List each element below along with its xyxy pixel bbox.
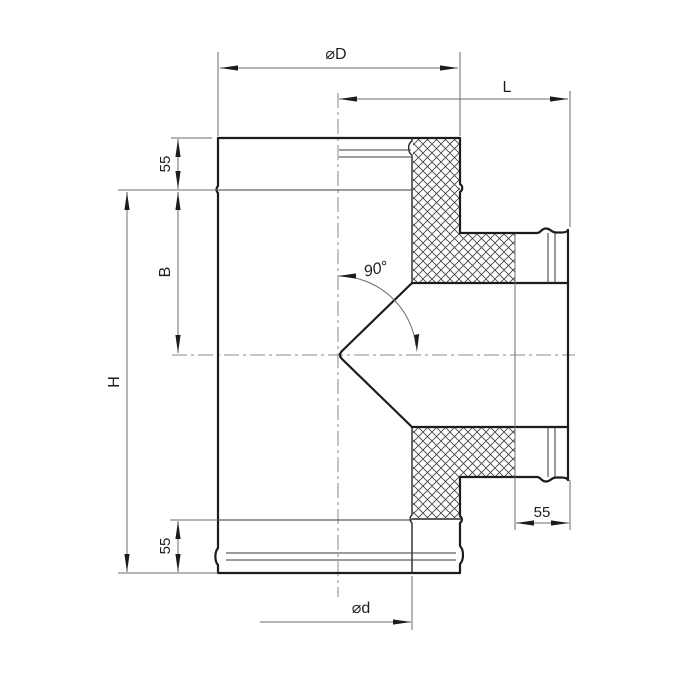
dim-bottom-socket-label: 55	[157, 538, 174, 555]
dim-outer-diameter-label: ⌀D	[325, 46, 346, 63]
dim-height-label: H	[106, 376, 123, 388]
dim-branch-socket-label: 55	[534, 504, 551, 521]
dim-top-socket-label: 55	[157, 156, 174, 173]
canvas	[0, 0, 700, 700]
dim-inner-diameter-label: ⌀d	[352, 600, 371, 617]
technical-drawing-page: ⌀D L 55 B H 55 55 ⌀d 90°	[0, 0, 700, 700]
dim-branch-center-label: B	[157, 267, 174, 278]
dim-length-label: L	[503, 79, 512, 96]
tee-fitting-drawing: ⌀D L 55 B H 55 55 ⌀d 90°	[0, 0, 700, 700]
